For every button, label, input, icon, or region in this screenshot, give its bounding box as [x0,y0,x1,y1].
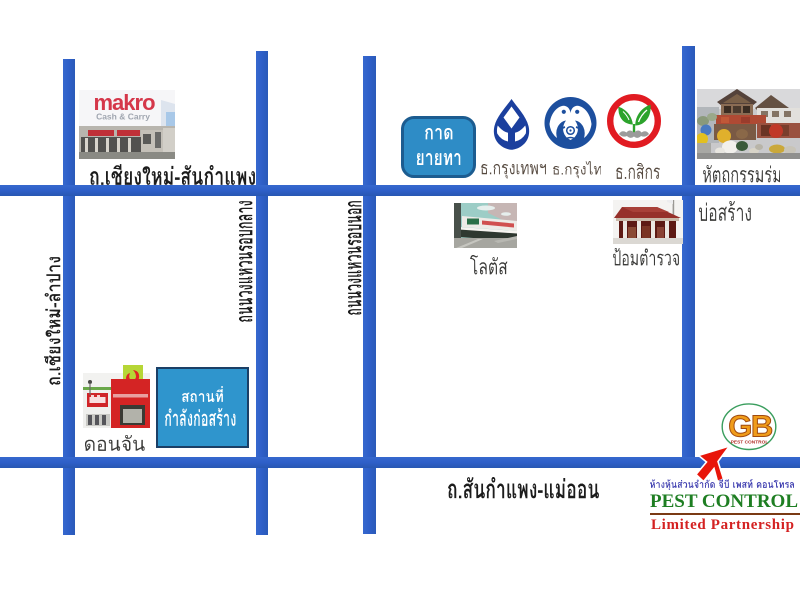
svg-text:GB: GB [728,409,772,444]
svg-text:PEST CONTROL: PEST CONTROL [731,440,769,446]
svg-text:Cash & Carry: Cash & Carry [96,112,150,122]
